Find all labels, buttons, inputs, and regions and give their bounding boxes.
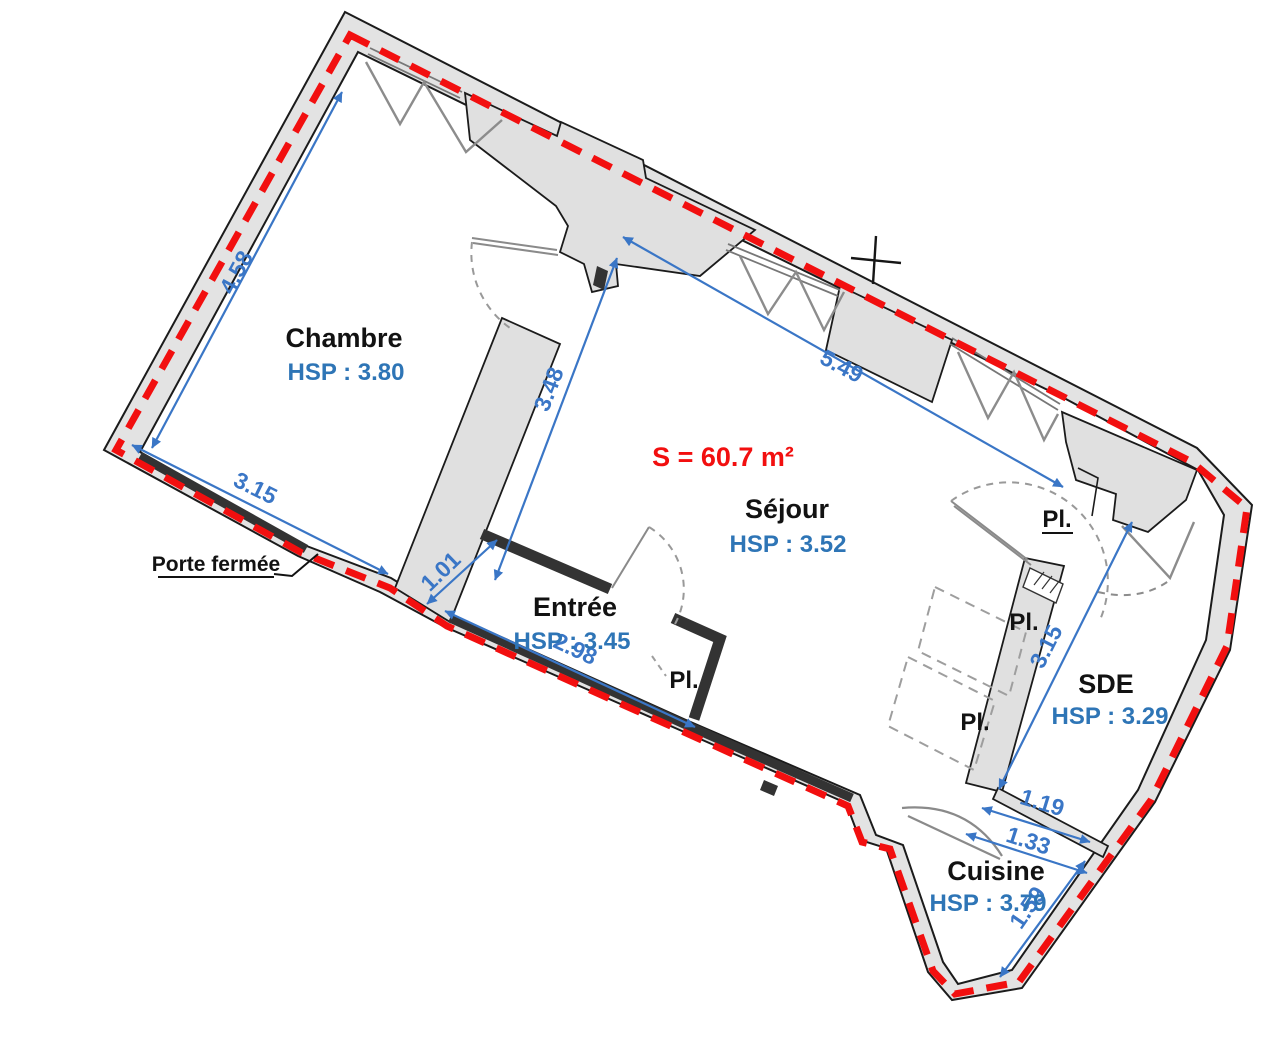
total-area-label: S = 60.7 m² [652, 442, 794, 472]
floor-plan-drawing: 4.58 3.15 3.48 5.49 1.01 2.98 3.15 1.19 … [0, 0, 1284, 1048]
room-sejour-name: Séjour [745, 494, 830, 524]
room-sde-name: SDE [1078, 669, 1134, 699]
closet-label-sejour: Pl. [1042, 506, 1071, 533]
floor-plan-page: 4.58 3.15 3.48 5.49 1.01 2.98 3.15 1.19 … [0, 0, 1284, 1048]
closet-label-corridor-top: Pl. [1009, 609, 1038, 636]
closet-label-entree: Pl. [669, 667, 698, 694]
room-cuisine-name: Cuisine [947, 856, 1045, 886]
room-cuisine-hsp: HSP : 3.79 [930, 890, 1047, 917]
room-entree-name: Entrée [533, 592, 617, 622]
door-note-label: Porte fermée [152, 553, 280, 576]
room-chambre-name: Chambre [285, 323, 402, 353]
room-chambre-hsp: HSP : 3.80 [288, 359, 405, 386]
wall-stub-bottom [760, 780, 778, 796]
room-sejour-hsp: HSP : 3.52 [730, 531, 847, 558]
room-sde-hsp: HSP : 3.29 [1052, 703, 1169, 730]
room-entree-hsp: HSP : 3.45 [514, 628, 631, 655]
closet-label-corridor-bottom: Pl. [960, 709, 989, 736]
door-note: Porte fermée [152, 553, 318, 577]
